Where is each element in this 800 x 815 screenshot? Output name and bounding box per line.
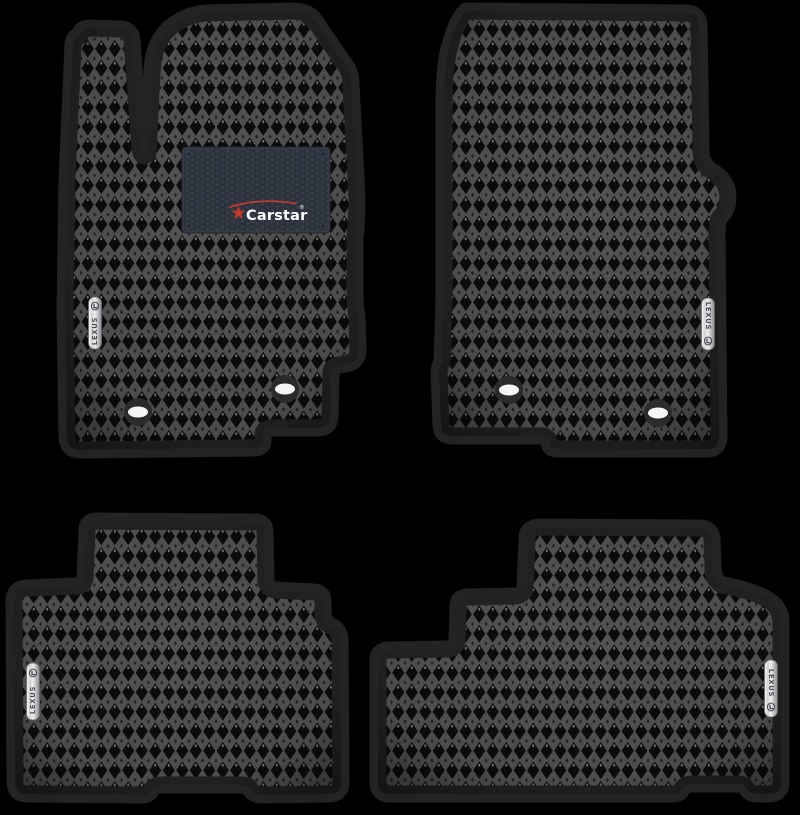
rivet-icon	[187, 152, 191, 156]
registered-trademark-symbol: ®	[299, 204, 305, 211]
mat-rear-left-shading	[14, 521, 341, 795]
mat-rear-left: LEXUS	[14, 521, 341, 795]
mat-front-right-shading	[439, 11, 728, 449]
fastener-hole	[271, 375, 299, 403]
floor-mats-product-image: Carstar ® LEXUS LEXUS	[0, 0, 800, 815]
hole-center	[648, 408, 668, 419]
badge-text: LEXUS	[91, 317, 99, 345]
fastener-hole	[124, 398, 152, 426]
hole-center	[128, 407, 148, 418]
lexus-badge-front-right: LEXUS	[702, 298, 715, 350]
mat-front-right: LEXUS	[439, 11, 728, 449]
fastener-hole	[644, 399, 672, 427]
lexus-badge-front-left: LEXUS	[89, 297, 102, 349]
badge-text: LEXUS	[767, 669, 775, 697]
fastener-hole	[495, 376, 523, 404]
rivet-icon	[321, 152, 325, 156]
hole-center	[499, 385, 519, 396]
rivet-icon	[187, 224, 191, 228]
badge-text: LEXUS	[704, 302, 712, 330]
lexus-badge-rear-left: LEXUS	[27, 663, 40, 720]
hole-center	[275, 384, 295, 395]
mat-rear-right: LEXUS	[378, 527, 781, 794]
maker-label-plate: Carstar ®	[182, 147, 330, 233]
rivet-icon	[321, 224, 325, 228]
lexus-badge-rear-right: LEXUS	[765, 660, 778, 717]
product-photo-canvas: Carstar ® LEXUS LEXUS	[0, 0, 800, 815]
badge-text: LEXUS	[29, 686, 37, 714]
mat-front-left: Carstar ® LEXUS	[65, 11, 358, 450]
